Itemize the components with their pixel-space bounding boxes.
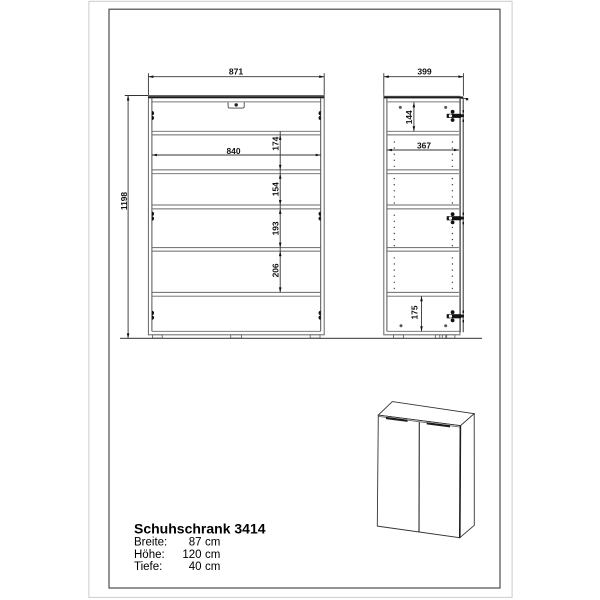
svg-text:144: 144 (404, 110, 414, 124)
svg-text:cm: cm (205, 549, 220, 561)
svg-text:40: 40 (189, 561, 202, 573)
svg-text:871: 871 (229, 67, 244, 77)
svg-text:87: 87 (189, 537, 202, 549)
svg-text:399: 399 (417, 67, 432, 77)
svg-text:120: 120 (182, 549, 201, 561)
svg-text:cm: cm (205, 537, 220, 549)
svg-text:Tiefe:: Tiefe: (134, 561, 162, 573)
svg-text:175: 175 (409, 305, 419, 319)
svg-text:840: 840 (227, 146, 241, 156)
svg-text:193: 193 (270, 221, 280, 235)
svg-text:1198: 1198 (119, 192, 129, 211)
svg-text:206: 206 (270, 263, 280, 277)
svg-text:154: 154 (270, 182, 280, 196)
svg-text:Breite:: Breite: (134, 537, 167, 549)
svg-text:cm: cm (205, 561, 220, 573)
svg-text:Schuhschrank 3414: Schuhschrank 3414 (134, 521, 266, 537)
svg-text:367: 367 (417, 140, 431, 150)
svg-text:Höhe:: Höhe: (134, 549, 165, 561)
svg-text:174: 174 (270, 136, 280, 150)
